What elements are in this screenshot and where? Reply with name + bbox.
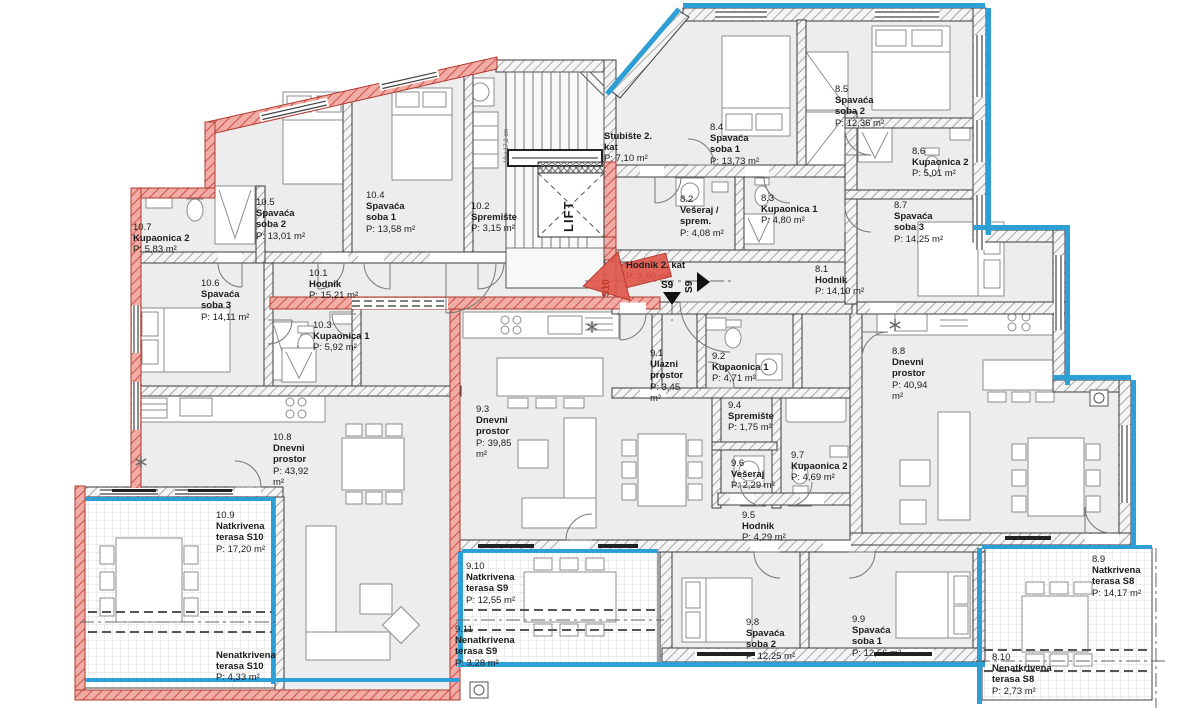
floorplan-canvas [0, 0, 1200, 724]
washer-9-6 [734, 456, 764, 486]
dining-9-3 [622, 434, 702, 506]
closet-10-7 [215, 186, 255, 244]
dining-10-8 [342, 424, 404, 504]
dining-8-8 [1012, 438, 1100, 516]
kitchen-10-8 [133, 394, 325, 422]
bed-9-9 [896, 572, 970, 638]
bed-10-4 [392, 88, 452, 180]
bed-8-4 [722, 36, 790, 136]
bed-9-8 [682, 578, 752, 642]
terrace-table-s9 [524, 558, 616, 636]
elevator [538, 162, 604, 237]
island-8-8 [983, 360, 1055, 402]
bed-10-6 [138, 308, 230, 372]
floorplan: 10.1HodnikP: 15,21 m²10.2SpremišteP: 3,1… [0, 0, 1200, 724]
bed-8-5 [872, 26, 950, 110]
wardrobe-8-45 [806, 52, 848, 166]
